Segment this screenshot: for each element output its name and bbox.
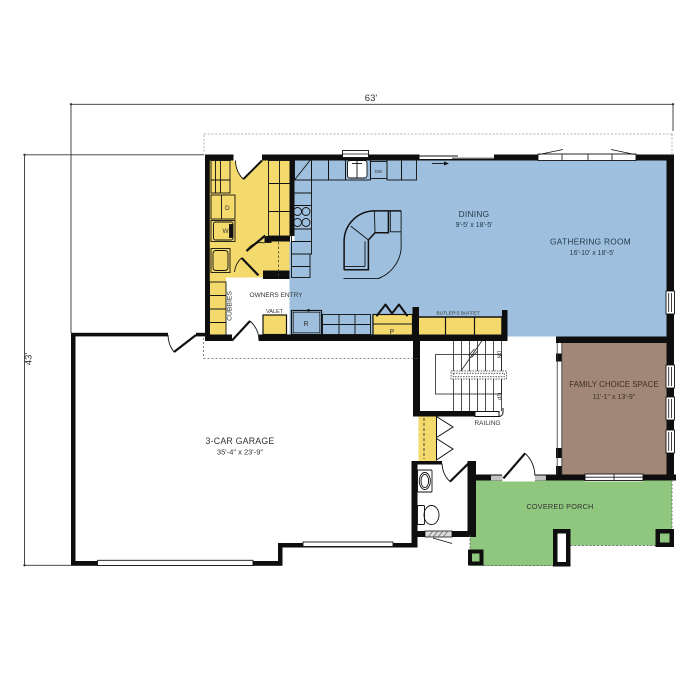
- svg-text:9'-5' x 18'-5': 9'-5' x 18'-5': [456, 222, 493, 229]
- svg-text:D: D: [225, 205, 230, 212]
- svg-text:R: R: [304, 321, 309, 328]
- svg-text:35'-4" x 23'-9": 35'-4" x 23'-9": [217, 448, 263, 457]
- svg-text:COVERED PORCH: COVERED PORCH: [526, 502, 593, 511]
- svg-text:43': 43': [24, 353, 35, 366]
- svg-text:W: W: [223, 228, 230, 235]
- svg-text:DN: DN: [496, 351, 502, 359]
- svg-text:DW: DW: [375, 169, 382, 174]
- svg-text:11'-1" x 13'-9": 11'-1" x 13'-9": [593, 394, 636, 401]
- svg-text:UP: UP: [495, 393, 501, 401]
- svg-text:DINING: DINING: [459, 209, 490, 219]
- svg-text:63': 63': [365, 93, 378, 104]
- svg-text:RAILING: RAILING: [474, 420, 500, 427]
- svg-text:BUTLER'S BUFFET: BUTLER'S BUFFET: [436, 311, 479, 317]
- svg-text:FAMILY CHOICE SPACE: FAMILY CHOICE SPACE: [569, 380, 658, 389]
- svg-text:3-CAR GARAGE: 3-CAR GARAGE: [206, 436, 275, 446]
- svg-text:OWNERS ENTRY: OWNERS ENTRY: [250, 292, 304, 299]
- svg-text:16'-10' x 18'-5': 16'-10' x 18'-5': [570, 250, 615, 257]
- svg-text:CUBBIES: CUBBIES: [226, 291, 233, 321]
- svg-text:VALET: VALET: [266, 309, 284, 315]
- svg-text:GATHERING ROOM: GATHERING ROOM: [550, 237, 631, 247]
- svg-text:P: P: [390, 329, 395, 336]
